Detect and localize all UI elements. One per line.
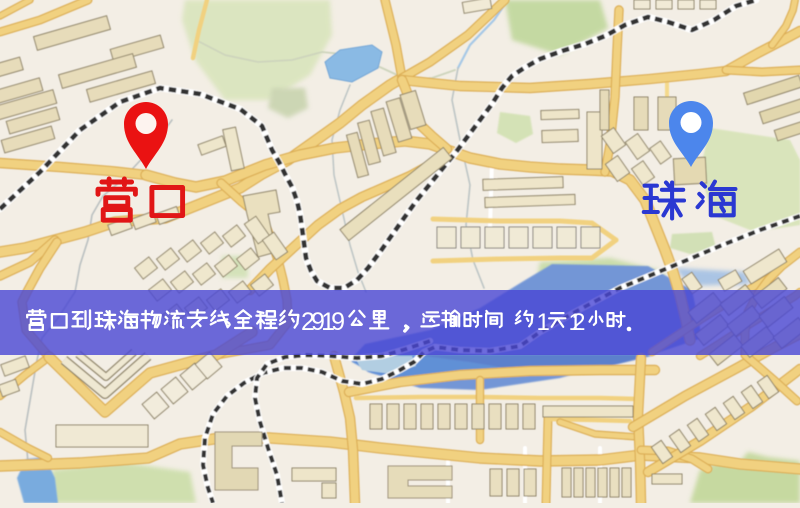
svg-text:1: 1	[537, 309, 550, 336]
svg-text:12: 12	[569, 309, 586, 336]
svg-text:2919: 2919	[301, 308, 345, 336]
